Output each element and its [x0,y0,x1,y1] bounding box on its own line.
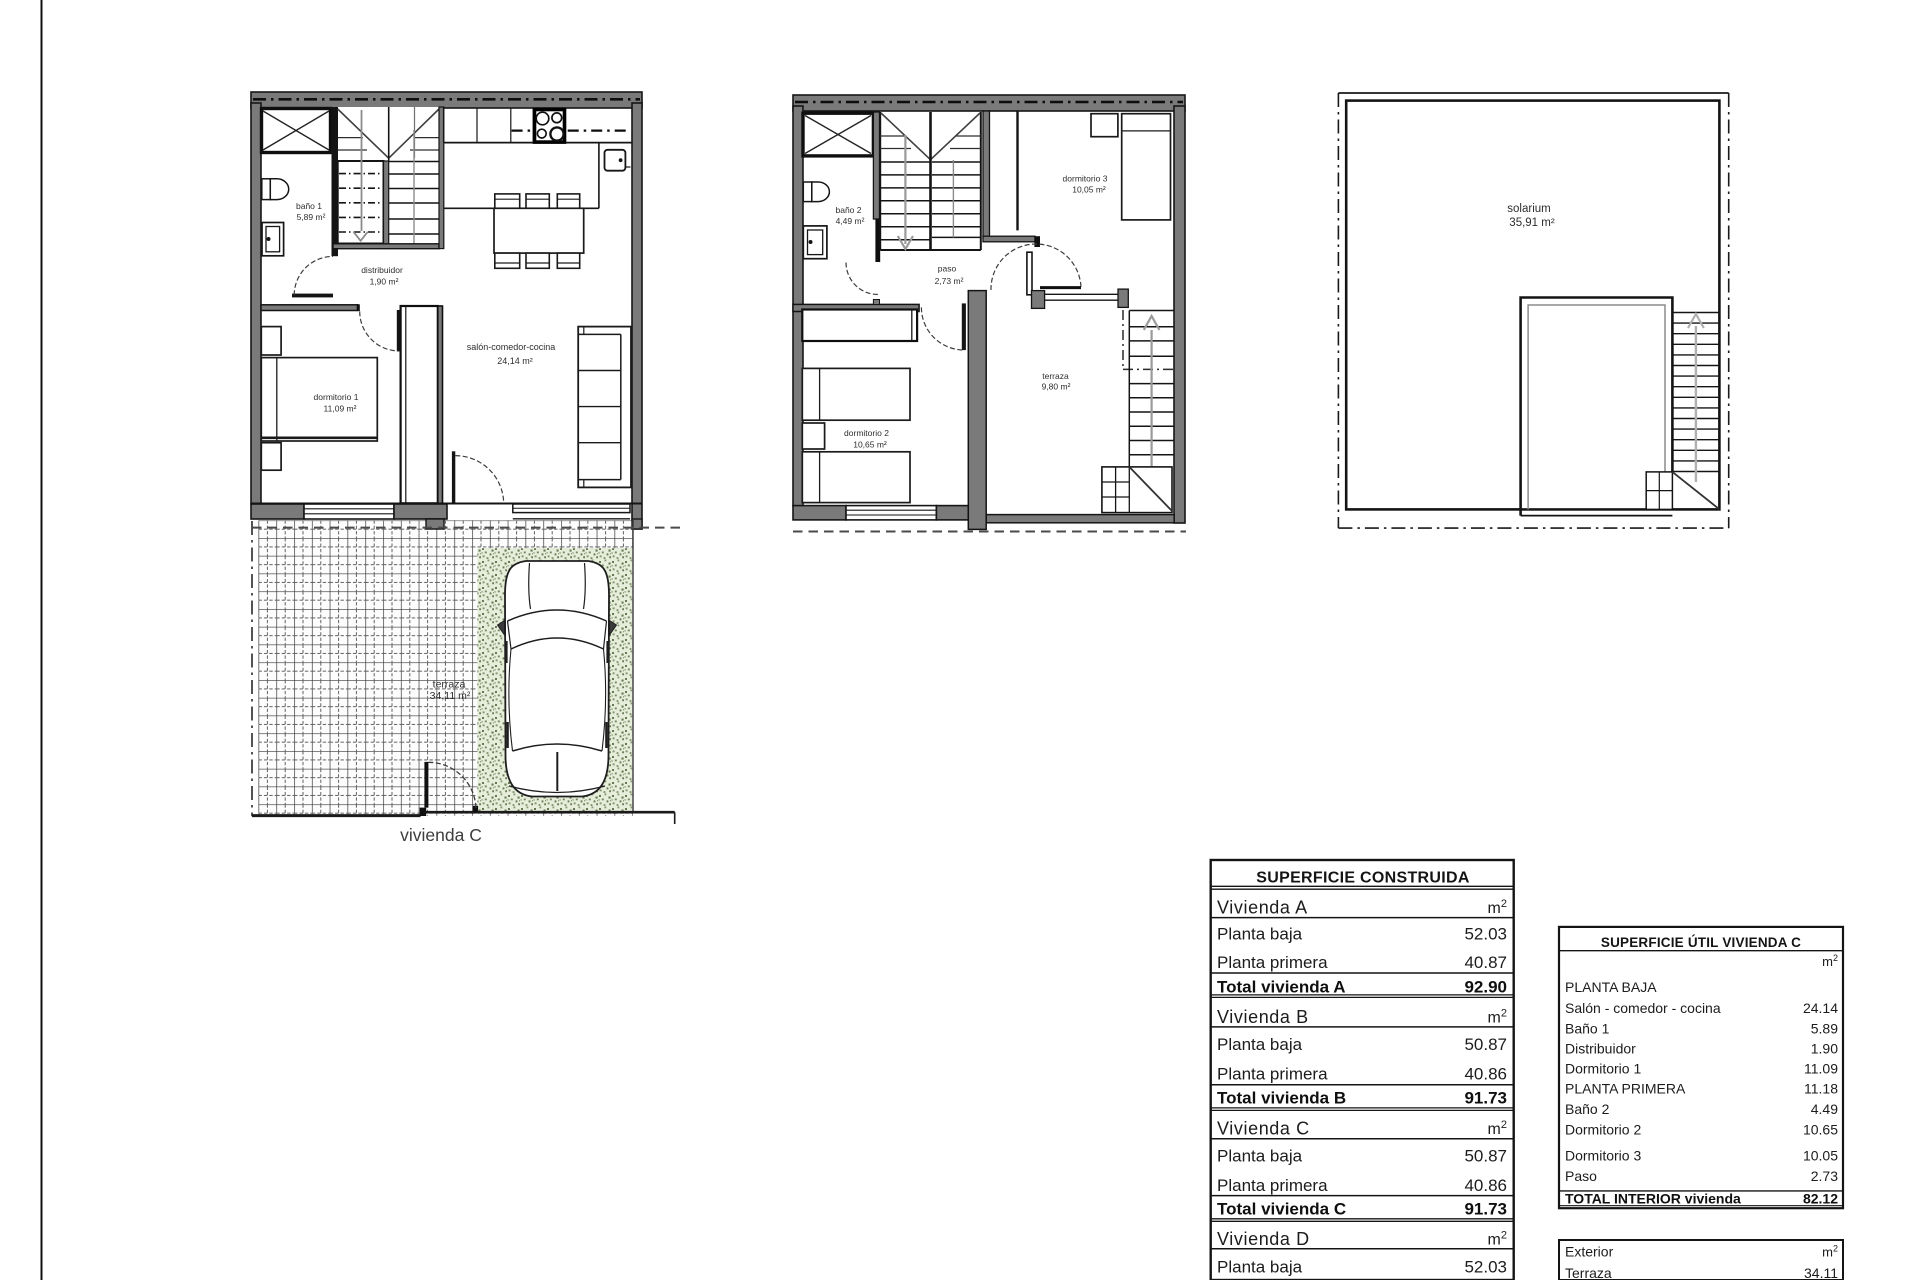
svg-text:91.73: 91.73 [1464,1089,1507,1108]
svg-text:Total vivienda A: Total vivienda A [1217,978,1345,997]
svg-text:Total vivienda C: Total vivienda C [1217,1200,1346,1219]
svg-text:Planta primera: Planta primera [1217,953,1328,972]
svg-text:82.12: 82.12 [1803,1191,1838,1207]
svg-text:PLANTA BAJA: PLANTA BAJA [1565,979,1657,995]
svg-text:Total vivienda B: Total vivienda B [1217,1089,1346,1108]
svg-text:2.73: 2.73 [1811,1168,1838,1184]
svg-text:Baño 1: Baño 1 [1565,1021,1610,1037]
svg-text:salón-comedor-cocina: salón-comedor-cocina [467,342,556,352]
svg-text:TOTAL INTERIOR vivienda: TOTAL INTERIOR vivienda [1565,1191,1741,1207]
svg-text:vivienda C: vivienda C [400,825,482,845]
svg-text:SUPERFICIE ÚTIL VIVIENDA C: SUPERFICIE ÚTIL VIVIENDA C [1601,935,1801,950]
svg-text:40.87: 40.87 [1464,953,1507,972]
svg-text:1,90 m²: 1,90 m² [370,277,399,287]
svg-text:distribuidor: distribuidor [361,265,403,275]
svg-text:52.03: 52.03 [1464,925,1507,944]
svg-text:10.05: 10.05 [1803,1148,1838,1164]
svg-text:Dormitorio 1: Dormitorio 1 [1565,1061,1641,1077]
svg-text:Planta baja: Planta baja [1217,1035,1303,1054]
svg-text:10,05 m²: 10,05 m² [1072,185,1106,195]
svg-text:Planta baja: Planta baja [1217,925,1303,944]
svg-text:11,09 m²: 11,09 m² [324,404,357,414]
svg-text:Vivienda A: Vivienda A [1217,898,1308,918]
svg-text:Planta baja: Planta baja [1217,1258,1303,1277]
svg-text:52.03: 52.03 [1464,1258,1507,1277]
svg-text:Planta primera: Planta primera [1217,1065,1328,1084]
svg-text:5.89: 5.89 [1811,1021,1838,1037]
svg-text:Dormitorio 2: Dormitorio 2 [1565,1122,1641,1138]
svg-text:24,14 m²: 24,14 m² [497,356,533,366]
svg-text:Dormitorio 3: Dormitorio 3 [1565,1148,1641,1164]
svg-text:Vivienda C: Vivienda C [1217,1119,1310,1139]
svg-text:9,80 m²: 9,80 m² [1042,382,1071,392]
svg-text:Planta baja: Planta baja [1217,1147,1303,1166]
svg-text:24.14: 24.14 [1803,1000,1838,1016]
svg-text:1.90: 1.90 [1811,1041,1838,1057]
svg-text:Vivienda D: Vivienda D [1217,1229,1310,1249]
svg-text:terraza: terraza [1042,371,1069,381]
svg-text:baño 1: baño 1 [296,201,322,211]
svg-text:Terraza: Terraza [1565,1265,1612,1280]
svg-text:10.65: 10.65 [1803,1122,1838,1138]
svg-text:Baño 2: Baño 2 [1565,1101,1610,1117]
svg-text:92.90: 92.90 [1464,978,1507,997]
svg-text:Paso: Paso [1565,1168,1597,1184]
svg-text:91.73: 91.73 [1464,1200,1507,1219]
svg-text:5,89 m²: 5,89 m² [297,212,326,222]
svg-text:40.86: 40.86 [1464,1176,1507,1195]
svg-text:34.11: 34.11 [1804,1265,1838,1280]
svg-text:11.18: 11.18 [1804,1081,1838,1097]
svg-text:34,11 m²: 34,11 m² [430,690,471,702]
svg-text:PLANTA PRIMERA: PLANTA PRIMERA [1565,1081,1686,1097]
svg-text:solarium: solarium [1507,203,1550,215]
svg-text:baño 2: baño 2 [836,205,862,215]
svg-text:dormitorio 2: dormitorio 2 [844,428,889,438]
svg-text:dormitorio 3: dormitorio 3 [1063,174,1108,184]
svg-text:50.87: 50.87 [1464,1147,1507,1166]
svg-text:4.49: 4.49 [1811,1101,1838,1117]
svg-text:40.86: 40.86 [1464,1065,1507,1084]
svg-text:Distribuidor: Distribuidor [1565,1041,1636,1057]
svg-text:10,65 m²: 10,65 m² [853,440,887,450]
svg-text:50.87: 50.87 [1464,1035,1507,1054]
svg-text:terraza: terraza [433,679,466,691]
svg-text:11.09: 11.09 [1804,1061,1838,1077]
svg-text:35,91 m²: 35,91 m² [1509,217,1555,229]
svg-text:Planta primera: Planta primera [1217,1176,1328,1195]
svg-text:Exterior: Exterior [1565,1244,1614,1260]
svg-text:2,73 m²: 2,73 m² [935,276,964,286]
svg-text:dormitorio 1: dormitorio 1 [314,392,359,402]
svg-text:paso: paso [938,264,957,274]
svg-text:4,49 m²: 4,49 m² [836,216,865,226]
svg-text:Salón - comedor - cocina: Salón - comedor - cocina [1565,1000,1721,1016]
svg-text:SUPERFICIE CONSTRUIDA: SUPERFICIE CONSTRUIDA [1256,870,1470,887]
svg-text:Vivienda B: Vivienda B [1217,1007,1309,1027]
